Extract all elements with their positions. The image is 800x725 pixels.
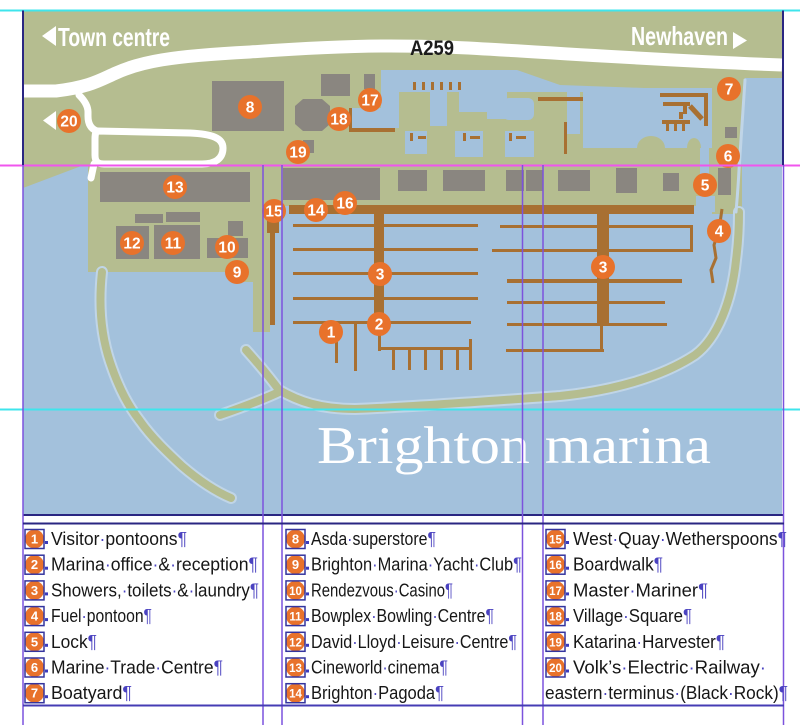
svg-text:3: 3	[31, 583, 38, 598]
svg-text:Boatyard¶: Boatyard¶	[51, 683, 132, 703]
svg-text:4: 4	[715, 224, 724, 241]
svg-text:Marine·Trade·Centre¶: Marine·Trade·Centre¶	[51, 658, 223, 678]
svg-text:10: 10	[289, 586, 302, 598]
svg-text:9: 9	[233, 265, 242, 282]
svg-text:7: 7	[725, 82, 734, 99]
svg-text:Lock¶: Lock¶	[51, 632, 97, 652]
svg-text:A259: A259	[410, 37, 454, 60]
svg-text:Asda·superstore¶: Asda·superstore¶	[311, 529, 436, 549]
svg-text:Showers,·toilets·&·laundry¶: Showers,·toilets·&·laundry¶	[51, 580, 259, 600]
svg-text:6: 6	[31, 660, 38, 675]
svg-text:12: 12	[289, 637, 302, 649]
svg-text:West·Quay·Wetherspoons¶: West·Quay·Wetherspoons¶	[573, 529, 787, 549]
svg-text:Newhaven: Newhaven	[631, 21, 728, 51]
svg-text:12: 12	[123, 236, 140, 253]
svg-text:Katarina·Harvester¶: Katarina·Harvester¶	[573, 632, 725, 652]
svg-text:14: 14	[289, 689, 302, 701]
svg-text:Visitor·pontoons¶: Visitor·pontoons¶	[51, 529, 187, 549]
svg-text:3: 3	[599, 260, 608, 277]
svg-text:Fuel·pontoon¶: Fuel·pontoon¶	[51, 606, 152, 626]
svg-text:Marina·office·&·reception¶: Marina·office·&·reception¶	[51, 555, 258, 575]
svg-text:Brighton marina: Brighton marina	[317, 417, 711, 475]
svg-text:3: 3	[376, 267, 385, 284]
svg-text:11: 11	[289, 612, 302, 624]
svg-text:20: 20	[549, 663, 562, 675]
svg-text:17: 17	[549, 586, 562, 598]
svg-text:10: 10	[218, 240, 235, 257]
svg-text:Brighton·Pagoda¶: Brighton·Pagoda¶	[311, 683, 444, 703]
svg-text:Village·Square¶: Village·Square¶	[573, 606, 692, 626]
svg-text:19: 19	[289, 145, 307, 162]
svg-text:6: 6	[724, 149, 733, 166]
svg-text:eastern·terminus·(Black·Rock)¶: eastern·terminus·(Black·Rock)¶	[545, 683, 788, 703]
svg-text:Bowplex·Bowling·Centre¶: Bowplex·Bowling·Centre¶	[311, 606, 494, 626]
svg-text:5: 5	[31, 634, 38, 649]
svg-text:Master·Mariner¶: Master·Mariner¶	[573, 580, 708, 600]
svg-text:17: 17	[361, 93, 378, 110]
svg-text:15: 15	[265, 204, 283, 221]
svg-text:Cineworld·cinema¶: Cineworld·cinema¶	[311, 658, 448, 678]
svg-text:Boardwalk¶: Boardwalk¶	[573, 555, 663, 575]
svg-text:16: 16	[549, 560, 562, 572]
svg-text:14: 14	[307, 203, 325, 220]
svg-text:2: 2	[31, 557, 38, 572]
svg-text:1: 1	[31, 532, 38, 547]
svg-text:19: 19	[549, 637, 562, 649]
svg-text:David·Lloyd·Leisure·Centre¶: David·Lloyd·Leisure·Centre¶	[311, 632, 517, 652]
svg-text:Brighton·Marina·Yacht·Club¶: Brighton·Marina·Yacht·Club¶	[311, 555, 522, 575]
svg-text:11: 11	[165, 236, 182, 253]
svg-text:18: 18	[549, 612, 562, 624]
svg-text:Town centre: Town centre	[58, 22, 170, 52]
svg-text:9: 9	[292, 557, 299, 572]
svg-text:13: 13	[289, 663, 302, 675]
svg-text:4: 4	[31, 609, 39, 624]
svg-text:20: 20	[60, 114, 77, 131]
svg-text:13: 13	[166, 180, 184, 197]
svg-text:8: 8	[246, 100, 255, 117]
svg-text:Rendezvous·Casino¶: Rendezvous·Casino¶	[311, 580, 453, 600]
svg-text:16: 16	[336, 196, 354, 213]
svg-text:2: 2	[375, 317, 384, 334]
svg-text:18: 18	[330, 112, 348, 129]
svg-text:5: 5	[701, 178, 710, 195]
svg-text:1: 1	[327, 325, 336, 342]
svg-text:15: 15	[549, 535, 562, 547]
svg-text:8: 8	[292, 532, 299, 547]
svg-text:7: 7	[31, 686, 38, 701]
svg-text:Volk’s·Electric·Railway·: Volk’s·Electric·Railway·	[573, 658, 766, 678]
